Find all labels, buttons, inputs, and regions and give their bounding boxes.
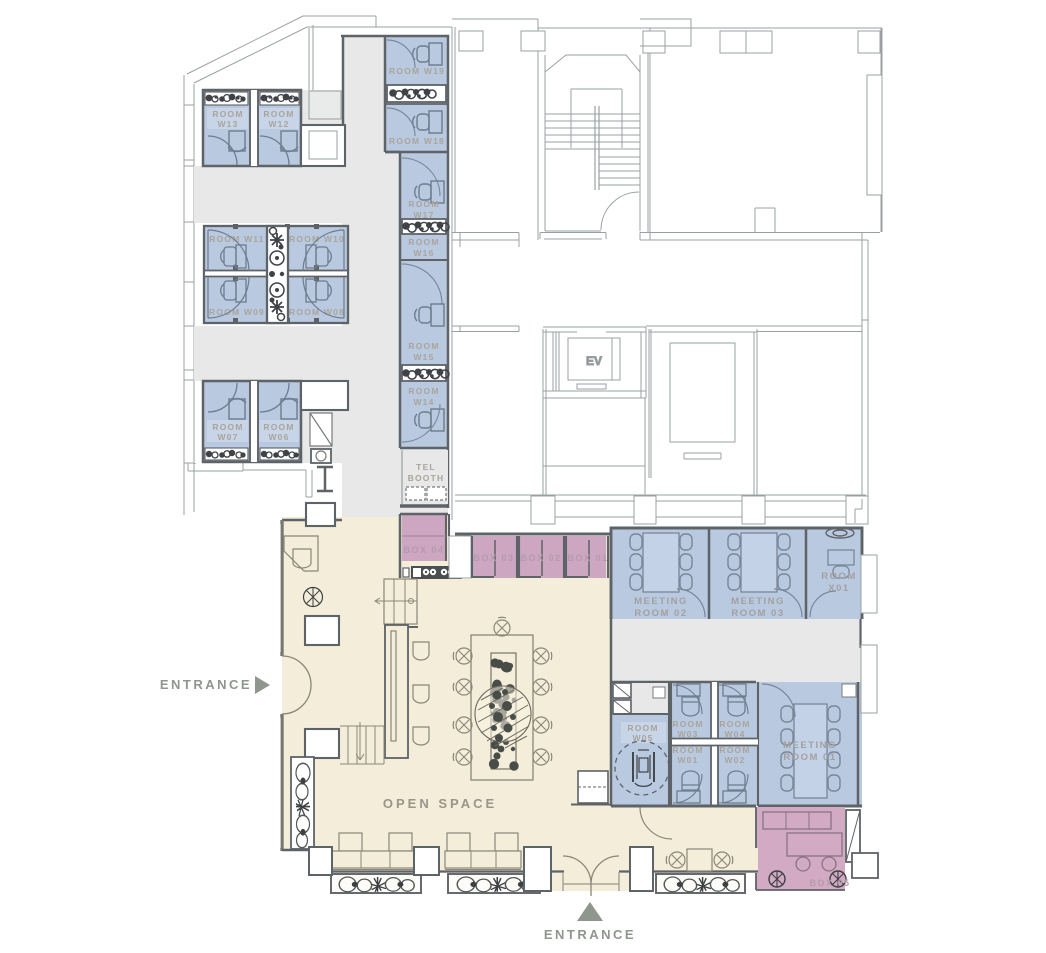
svg-text:BOX 02: BOX 02 xyxy=(520,553,561,563)
svg-text:ROOM: ROOM xyxy=(263,422,294,432)
svg-text:ENTRANCE: ENTRANCE xyxy=(160,677,252,692)
svg-text:W02: W02 xyxy=(724,755,745,765)
svg-text:W14: W14 xyxy=(413,397,434,407)
svg-text:TEL: TEL xyxy=(416,462,436,472)
svg-text:ROOM: ROOM xyxy=(212,422,243,432)
svg-text:ROOM: ROOM xyxy=(672,745,703,755)
svg-text:ROOM: ROOM xyxy=(821,571,857,582)
svg-text:W15: W15 xyxy=(413,352,434,362)
svg-text:ROOM 01: ROOM 01 xyxy=(783,752,836,763)
svg-text:ROOM: ROOM xyxy=(263,109,294,119)
svg-text:BOX 01: BOX 01 xyxy=(567,553,608,563)
svg-text:ROOM: ROOM xyxy=(408,341,439,351)
svg-text:ROOM 03: ROOM 03 xyxy=(731,608,784,619)
svg-text:ROOM W19: ROOM W19 xyxy=(389,66,445,76)
svg-text:ROOM 02: ROOM 02 xyxy=(634,608,687,619)
svg-text:X01: X01 xyxy=(828,583,849,594)
svg-text:W16: W16 xyxy=(413,248,434,258)
svg-text:W03: W03 xyxy=(677,729,698,739)
svg-text:ROOM W09: ROOM W09 xyxy=(209,307,265,317)
svg-text:ROOM: ROOM xyxy=(212,109,243,119)
svg-text:W13: W13 xyxy=(217,119,238,129)
svg-text:ROOM W10: ROOM W10 xyxy=(289,234,345,244)
svg-text:W12: W12 xyxy=(268,119,289,129)
svg-text:ROOM: ROOM xyxy=(408,199,439,209)
svg-text:BOOTH: BOOTH xyxy=(408,473,445,483)
svg-text:BOX 03: BOX 03 xyxy=(473,553,514,563)
svg-text:ROOM: ROOM xyxy=(627,723,658,733)
svg-text:ENTRANCE: ENTRANCE xyxy=(544,927,636,942)
svg-text:EV: EV xyxy=(586,354,602,368)
svg-text:OPEN SPACE: OPEN SPACE xyxy=(383,796,497,811)
svg-text:ROOM: ROOM xyxy=(408,237,439,247)
svg-text:BOX 05: BOX 05 xyxy=(809,878,850,888)
svg-text:W01: W01 xyxy=(677,755,698,765)
svg-text:W04: W04 xyxy=(724,729,745,739)
svg-text:ROOM W18: ROOM W18 xyxy=(389,136,445,146)
svg-text:ROOM: ROOM xyxy=(719,745,750,755)
svg-text:MEETING: MEETING xyxy=(731,596,785,607)
svg-text:MEETING: MEETING xyxy=(634,596,688,607)
svg-text:ROOM: ROOM xyxy=(719,719,750,729)
svg-text:BOX 04: BOX 04 xyxy=(403,545,444,555)
svg-text:W07: W07 xyxy=(217,432,238,442)
svg-text:ROOM: ROOM xyxy=(672,719,703,729)
svg-text:ROOM: ROOM xyxy=(408,386,439,396)
svg-text:MEETING: MEETING xyxy=(783,740,837,751)
svg-text:W06: W06 xyxy=(268,432,289,442)
